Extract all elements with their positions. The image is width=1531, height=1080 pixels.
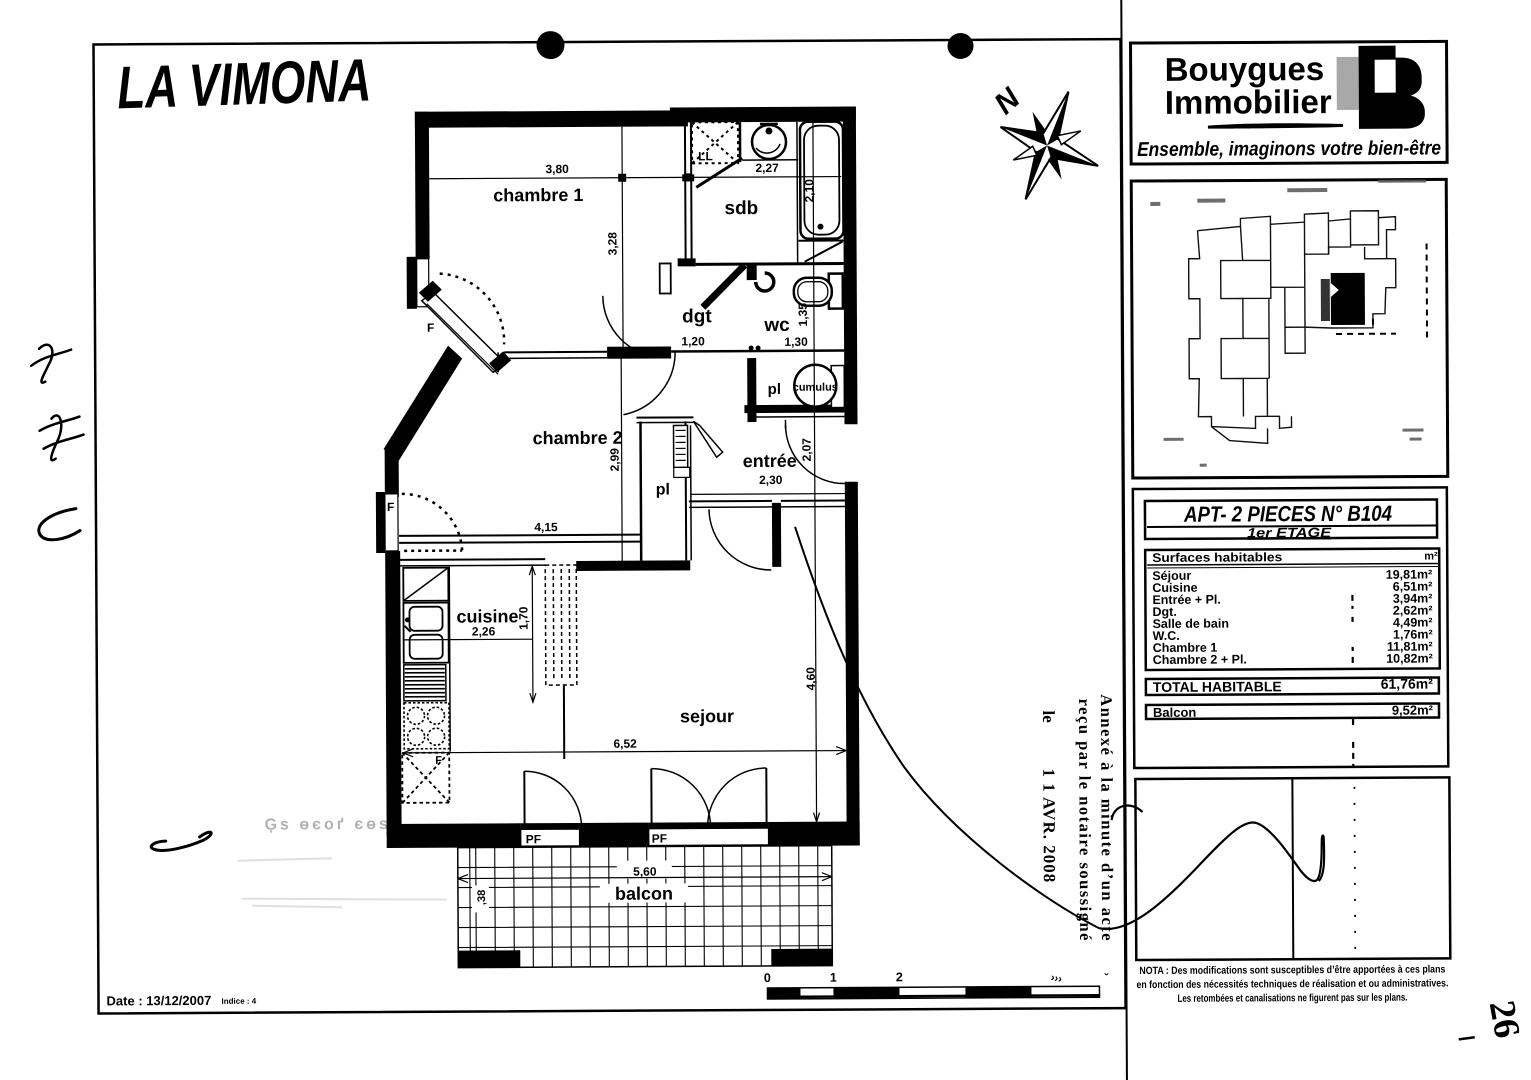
svg-text:0: 0	[764, 971, 771, 985]
svg-text:1,20: 1,20	[681, 334, 705, 348]
svg-text:F: F	[427, 321, 434, 335]
svg-text:wc: wc	[763, 315, 790, 336]
svg-text:2,07: 2,07	[800, 438, 814, 462]
svg-text:pl: pl	[768, 381, 781, 398]
svg-text:Annexé à la minute d’un acte: Annexé à la minute d’un acte	[1097, 694, 1117, 942]
svg-text:4,15: 4,15	[534, 520, 558, 534]
svg-text:APT- 2 PIECES N° B104: APT- 2 PIECES N° B104	[1183, 501, 1392, 527]
svg-text:Les retombées et canalisatio: Les retombées et canalisations ne figure…	[1177, 992, 1407, 1005]
svg-text:1,30: 1,30	[784, 335, 808, 349]
svg-text:chambre 2: chambre 2	[532, 428, 622, 448]
svg-text:5,60: 5,60	[633, 865, 657, 879]
svg-text:balcon: balcon	[615, 883, 673, 903]
svg-text:2,99: 2,99	[608, 448, 622, 472]
svg-text:sdb: sdb	[724, 198, 758, 219]
svg-text:2: 2	[896, 970, 903, 984]
svg-text:en fonction des nécessités: en fonction des nécessités techniques de…	[1136, 977, 1448, 991]
svg-text:61,76m²: 61,76m²	[1381, 675, 1434, 691]
svg-text:10,82m²: 10,82m²	[1386, 651, 1433, 665]
svg-text:entrée: entrée	[743, 451, 797, 471]
svg-text:2,26: 2,26	[472, 624, 496, 638]
svg-text:Ģѕ өєоґ єөѕ۱: Ģѕ өєоґ єөѕ۱	[265, 816, 400, 834]
svg-text:Balcon: Balcon	[1153, 705, 1196, 720]
svg-text:Surfaces habitables: Surfaces habitables	[1152, 550, 1282, 565]
svg-text:F: F	[387, 500, 394, 514]
svg-text:2,10: 2,10	[802, 179, 816, 203]
svg-text:26: 26	[1481, 997, 1528, 1041]
svg-text:1: 1	[830, 971, 837, 985]
svg-text:le: le	[1039, 710, 1058, 723]
svg-text:LA VIMONA: LA VIMONA	[116, 46, 372, 121]
svg-text:dgt: dgt	[682, 306, 712, 327]
svg-text:1 1 AVR. 2008: 1 1 AVR. 2008	[1039, 768, 1059, 883]
svg-text:Chambre 2 + Pl.: Chambre 2 + Pl.	[1153, 652, 1247, 666]
svg-text:3,80: 3,80	[545, 162, 569, 176]
svg-text:reçu par le notaire soussigné: reçu par le notaire soussigné	[1075, 699, 1095, 942]
svg-text:PF: PF	[526, 832, 541, 846]
svg-text:2,30: 2,30	[759, 473, 783, 487]
svg-text:sejour: sejour	[680, 706, 734, 726]
svg-text:3,28: 3,28	[605, 232, 619, 256]
svg-text:NOTA : Des modifications sont: NOTA : Des modifications sont susceptibl…	[1139, 963, 1445, 977]
svg-text:6,52: 6,52	[613, 737, 637, 751]
svg-text:1,35: 1,35	[796, 303, 810, 327]
svg-text:2,27: 2,27	[755, 161, 779, 175]
svg-text:m²: m²	[1424, 550, 1438, 562]
svg-text:Date : 13/12/2007: Date : 13/12/2007	[106, 993, 211, 1009]
svg-text:LL: LL	[698, 149, 713, 163]
svg-text:PF: PF	[652, 831, 667, 845]
svg-text:TOTAL HABITABLE: TOTAL HABITABLE	[1153, 678, 1282, 695]
svg-text:Ensemble, imaginons votre bien: Ensemble, imaginons votre bien-être	[1137, 137, 1441, 161]
svg-text:pl: pl	[656, 481, 670, 498]
svg-text:4,60: 4,60	[804, 667, 818, 691]
svg-text:Indice : 4: Indice : 4	[221, 997, 256, 1006]
svg-text:,38: ,38	[476, 890, 488, 905]
svg-text:1er ETAGE: 1er ETAGE	[1247, 525, 1332, 540]
svg-text:9,52m²: 9,52m²	[1392, 702, 1434, 717]
svg-text:cumulus: cumulus	[793, 382, 838, 394]
svg-text:Immobilier: Immobilier	[1165, 83, 1332, 121]
svg-text:chambre 1: chambre 1	[493, 185, 583, 205]
svg-text:F: F	[435, 755, 442, 767]
svg-text:1,70: 1,70	[516, 606, 530, 630]
